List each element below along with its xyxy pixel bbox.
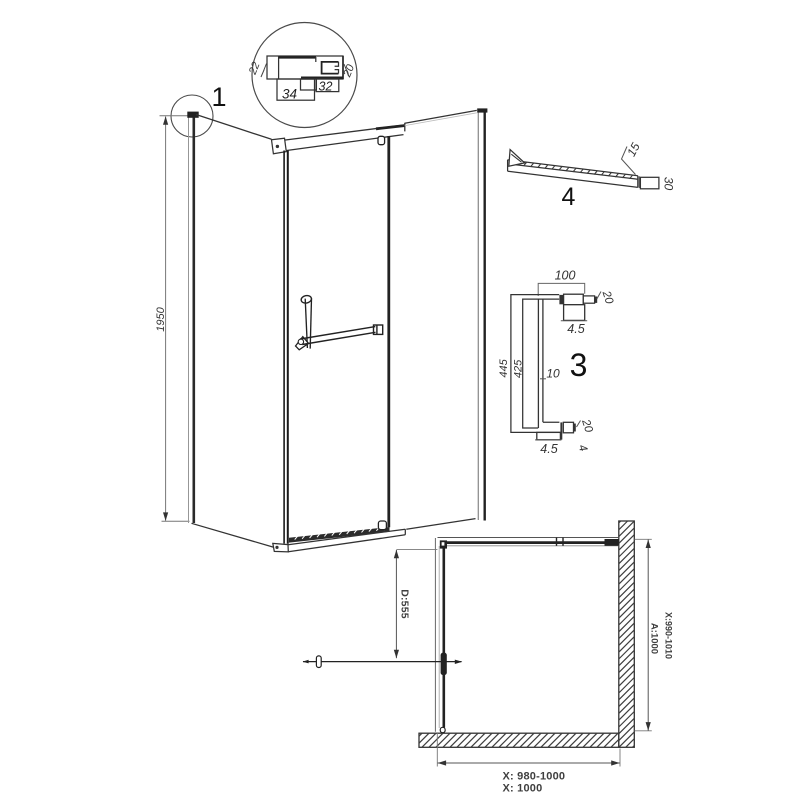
svg-text:4.5: 4.5 [567, 322, 584, 336]
svg-text:100: 100 [555, 269, 576, 283]
svg-text:34: 34 [282, 87, 297, 102]
svg-text:32: 32 [319, 80, 333, 94]
svg-text:4: 4 [562, 183, 576, 211]
svg-text:445: 445 [498, 358, 510, 377]
svg-text:X: 980-1000: X: 980-1000 [503, 771, 566, 783]
svg-text:1950: 1950 [155, 306, 167, 331]
svg-text:1: 1 [211, 82, 226, 112]
svg-text:X: 1000: X: 1000 [503, 783, 543, 795]
svg-text:3: 3 [570, 347, 588, 383]
svg-text:D:555: D:555 [399, 589, 411, 619]
svg-text:A:1000: A:1000 [649, 623, 660, 654]
svg-text:30: 30 [662, 177, 676, 191]
svg-text:X:990-1010: X:990-1010 [664, 612, 674, 659]
svg-text:4.5: 4.5 [540, 442, 557, 456]
svg-text:425: 425 [512, 359, 524, 378]
svg-text:10: 10 [546, 367, 560, 381]
